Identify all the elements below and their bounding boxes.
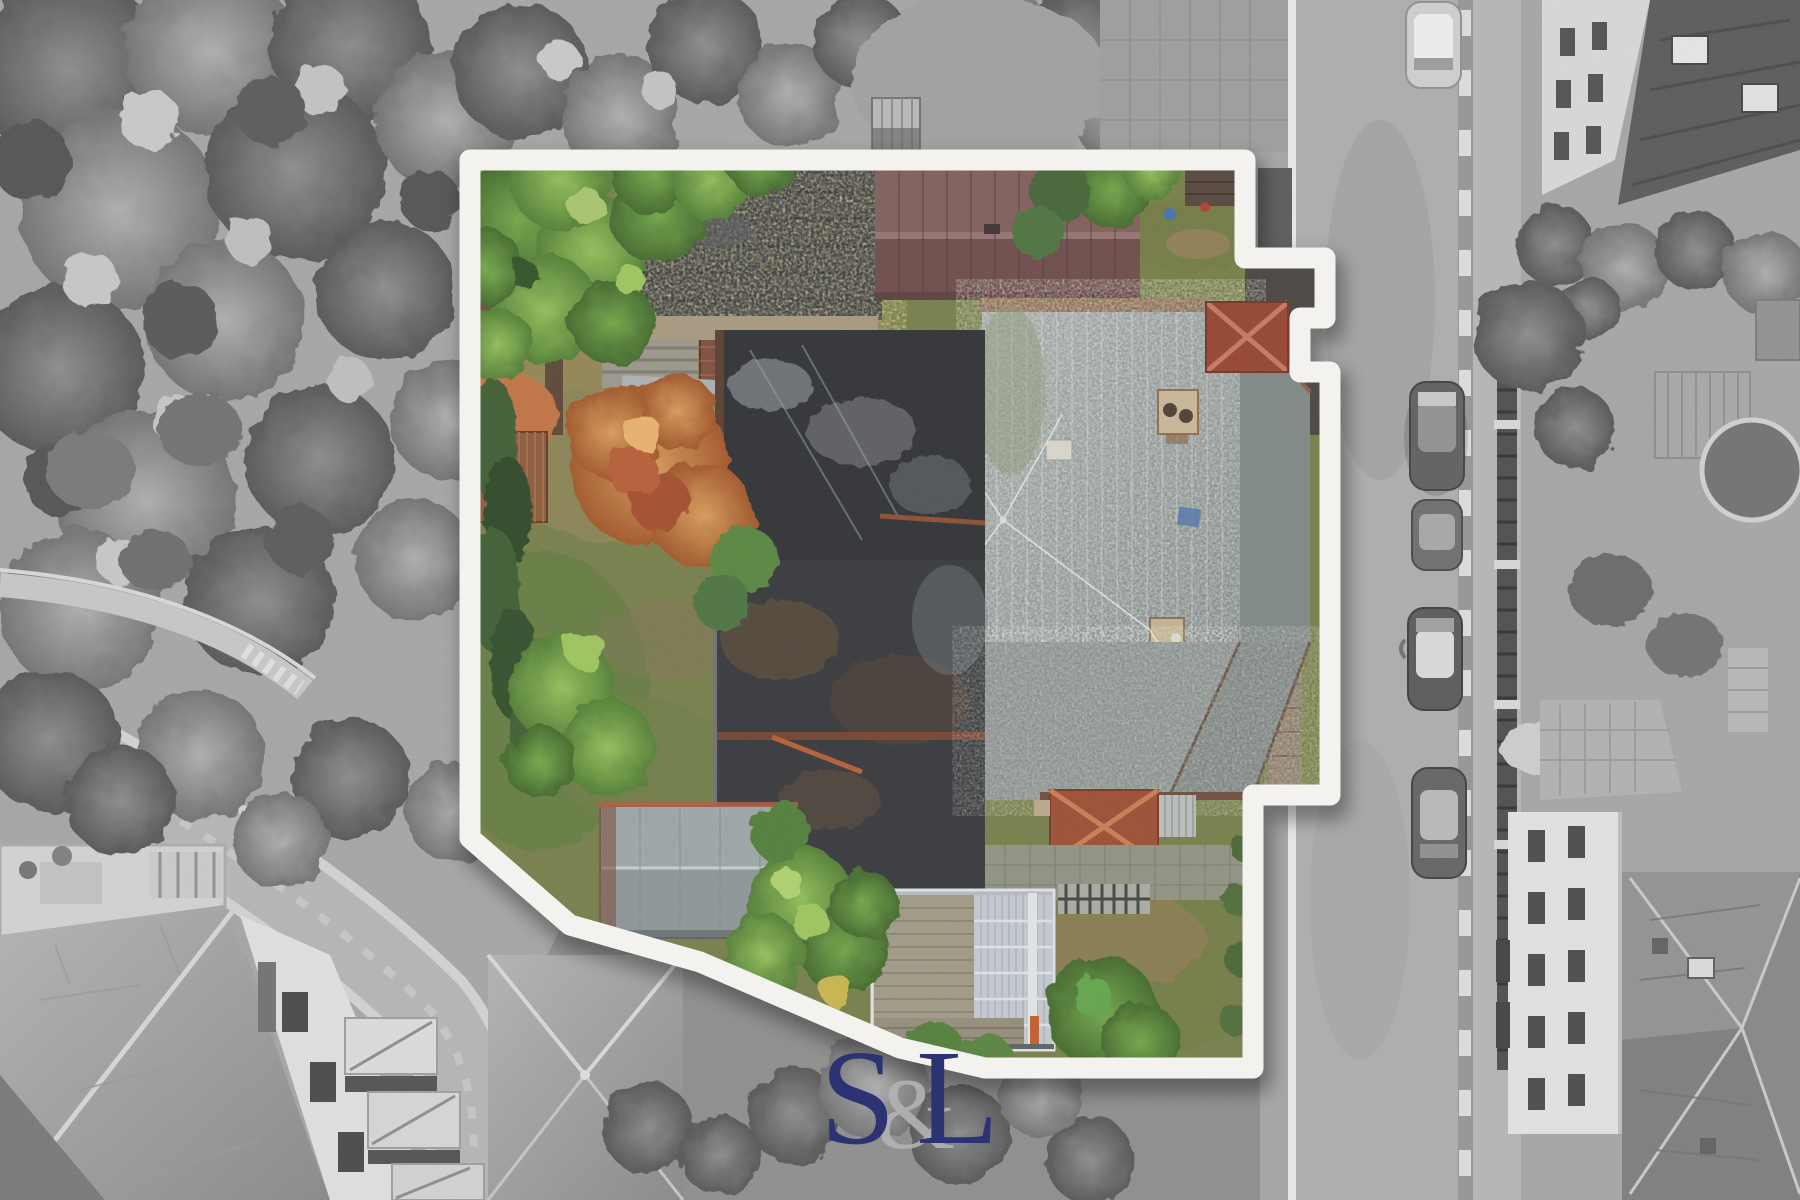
photo-grain-overlay [0,0,1800,1200]
aerial-photo: & S L [0,0,1800,1200]
watermark-letter-l: L [916,1023,999,1173]
watermark-letter-s: S [820,1023,896,1173]
